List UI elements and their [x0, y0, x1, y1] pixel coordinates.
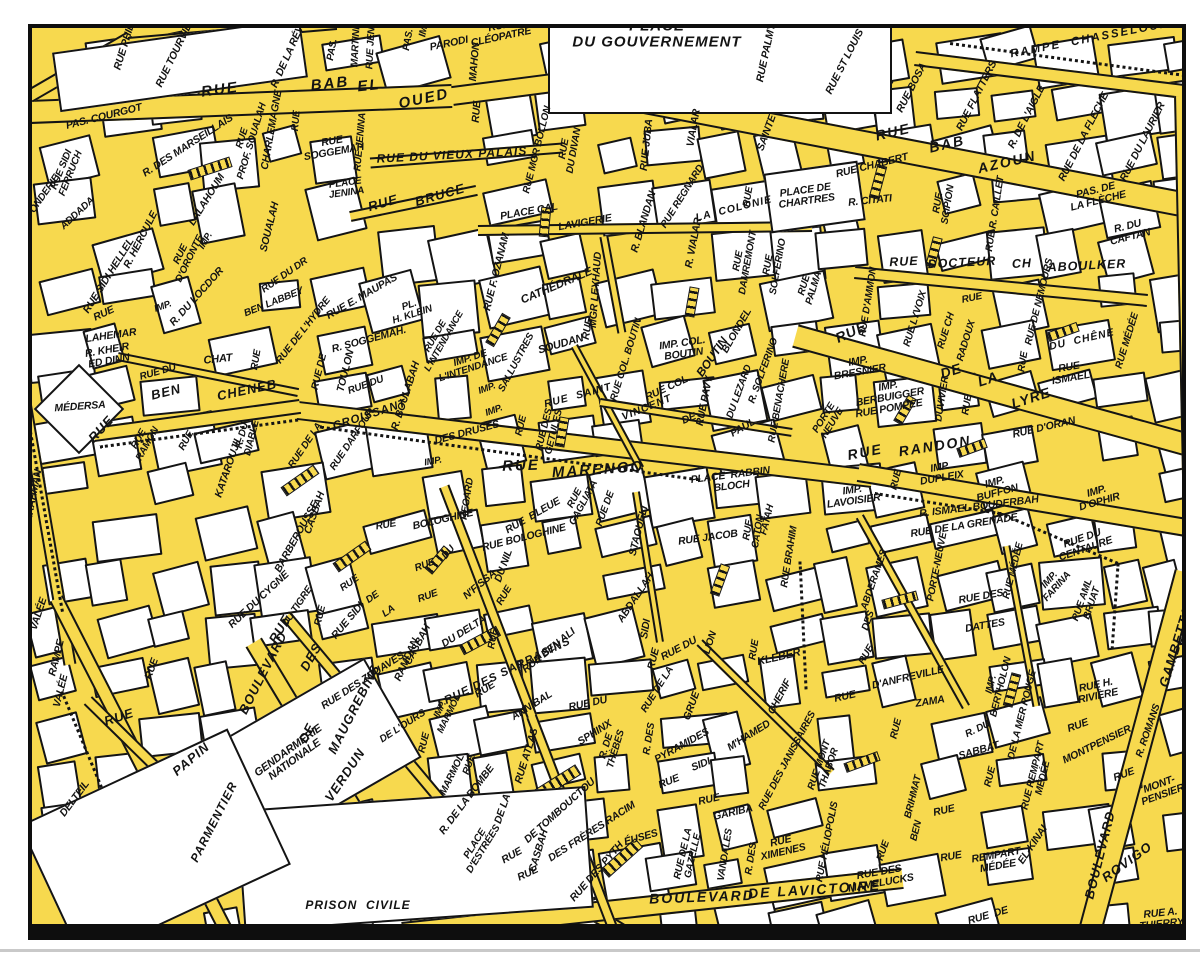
street-label: R. DES — [642, 722, 657, 755]
street-label: SOUALAH — [259, 201, 282, 253]
street-label: RUE — [983, 766, 998, 788]
city-block — [85, 558, 129, 606]
city-block — [1102, 558, 1148, 609]
street-label: RUE — [961, 394, 974, 416]
street-label: SIDI — [639, 618, 653, 639]
street-label: IMP. — [424, 456, 443, 469]
street-label: RUE XIMENES — [757, 831, 807, 863]
street-label: RUE — [471, 101, 484, 123]
city-block — [147, 610, 190, 648]
street-label: RUE — [291, 110, 303, 131]
city-block — [1092, 372, 1148, 409]
page-edge-line — [0, 949, 1200, 952]
city-block — [362, 509, 433, 556]
city-block — [1162, 808, 1186, 853]
street-label: IMP. — [477, 381, 497, 396]
street-label: RUE — [495, 585, 514, 608]
street-label: RUE MÉDÉE — [1115, 312, 1142, 370]
street-label: DE LA — [748, 883, 801, 901]
street-label: RUE A. THIERRY — [1138, 906, 1185, 926]
city-block — [152, 560, 210, 617]
street-label: PLACE DU GOUVERNEMENT — [572, 28, 741, 50]
city-block — [91, 513, 161, 563]
street-label: RUE — [1066, 717, 1090, 735]
street-label: RUE CH — [937, 312, 958, 351]
city-block — [813, 556, 859, 615]
street-label: RADOUX — [956, 319, 978, 362]
street-label: CH — [1012, 257, 1033, 271]
street-label: RUE — [417, 732, 432, 754]
street-label: ZAMA — [915, 694, 946, 709]
street-label: RUE — [833, 689, 856, 704]
street-label: RUE — [889, 718, 904, 740]
street-label: RUE — [932, 803, 955, 818]
casbah-street-map-page: RUE PHILIPPERUE TOURVILLER. DE LA RÉVOLU… — [0, 0, 1200, 959]
street-label: RUE — [250, 349, 264, 371]
street-label: RUE — [939, 850, 962, 864]
street-label: EL — [357, 77, 382, 95]
map-canvas: RUE PHILIPPERUE TOURVILLER. DE LA RÉVOLU… — [32, 28, 1186, 926]
street-label: BOULEVARD — [649, 888, 755, 906]
city-block — [814, 228, 868, 271]
city-block — [1036, 658, 1079, 709]
city-block — [194, 505, 258, 561]
street-label: RUE D'ORAN — [1012, 415, 1077, 440]
street-label: R. DES — [744, 842, 759, 875]
city-block — [587, 658, 653, 696]
street-label: RUE — [889, 255, 919, 270]
city-block — [650, 276, 716, 320]
city-block — [146, 462, 194, 506]
street-label: IMP. COL. BOUTIN — [658, 335, 707, 363]
city-block — [597, 136, 638, 175]
city-block — [41, 461, 89, 495]
city-block — [193, 660, 237, 717]
street-label: RUE DU — [659, 635, 699, 663]
street-label: RUE — [697, 792, 720, 807]
street-label: LA — [381, 604, 398, 620]
street-label: MAHON — [468, 42, 482, 81]
street-label: LION — [702, 630, 719, 655]
city-block — [207, 326, 278, 378]
street-label: RUE — [876, 840, 893, 863]
street-label: BRIHMAT — [904, 774, 925, 819]
street-label: RUE — [502, 458, 540, 475]
street-label: RUE — [961, 292, 983, 306]
street-label: PRISON CIVILE — [305, 899, 410, 911]
street-map: RUE PHILIPPERUE TOURVILLER. DE LA RÉVOLU… — [32, 28, 1186, 926]
street-label: RUE JENINA — [353, 112, 368, 171]
street-label: RUE SCIPION — [931, 183, 958, 225]
street-label: BEN — [909, 820, 924, 842]
street-label: RUE DU DIVAN — [556, 126, 584, 175]
street-label: DOCTEUR — [927, 255, 996, 272]
street-label: BRUCE — [414, 181, 467, 208]
city-block — [1158, 705, 1186, 757]
city-block — [980, 804, 1029, 849]
city-block — [761, 374, 823, 423]
street-label: DE — [364, 590, 381, 606]
street-label: R. CITATI — [848, 193, 893, 208]
city-block — [815, 899, 876, 926]
map-bottom-border — [28, 924, 1186, 940]
street-label: RUE — [417, 589, 440, 606]
